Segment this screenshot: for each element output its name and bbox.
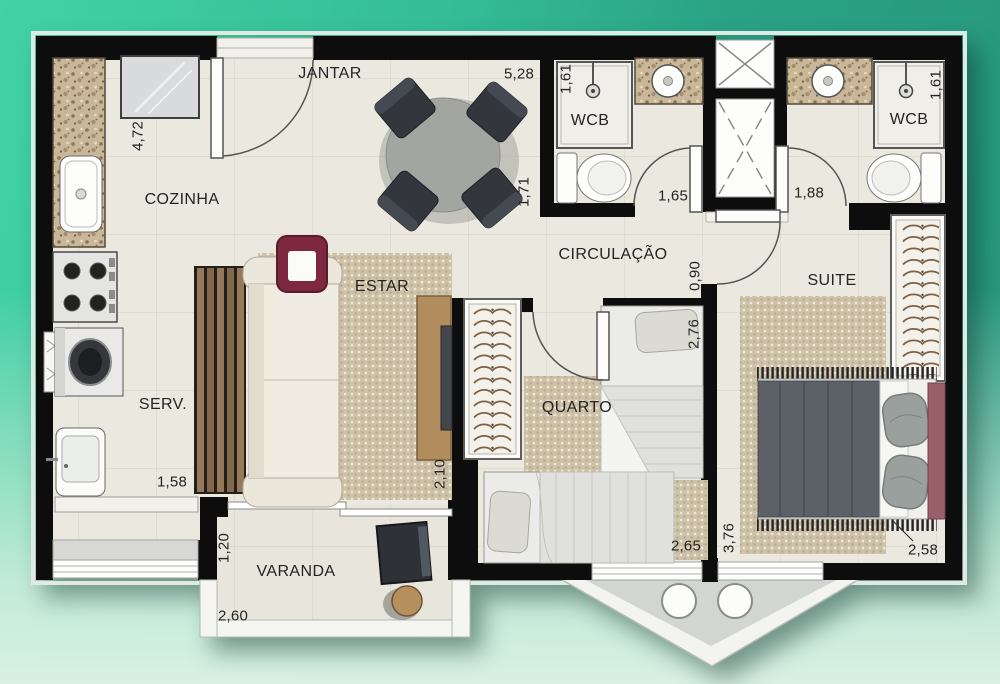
dim-serv-width: 1,58 bbox=[157, 475, 187, 490]
dining bbox=[372, 76, 529, 234]
living bbox=[194, 236, 452, 507]
room-label-circulacao: CIRCULAÇÃO bbox=[559, 247, 668, 263]
dim-quarto-bed-length: 2,76 bbox=[687, 319, 702, 349]
dim-suite-depth: 3,76 bbox=[722, 523, 737, 553]
dim-wcb-right-entry: 1,88 bbox=[794, 186, 824, 201]
bedroom-window bbox=[592, 562, 702, 580]
room-label-jantar: JANTAR bbox=[298, 66, 361, 82]
room-label-cozinha: COZINHA bbox=[145, 192, 220, 208]
balcony-railing bbox=[452, 580, 470, 637]
room-label-quarto: QUARTO bbox=[542, 400, 612, 416]
dim-estar-tv-wall: 2,10 bbox=[433, 459, 448, 489]
room-label-wcb-right: WCB bbox=[890, 112, 929, 128]
stove bbox=[53, 252, 117, 322]
tv bbox=[441, 326, 452, 430]
suite-window bbox=[718, 562, 823, 580]
suite-door bbox=[716, 210, 780, 222]
bedroom-door bbox=[597, 312, 609, 380]
pillow bbox=[881, 453, 932, 511]
floor-plan bbox=[0, 0, 1000, 684]
floorplan-image: JANTAR 5,28 1,61 WCB WCB 1,61 COZINHA 4,… bbox=[0, 0, 1000, 684]
balcony-railing bbox=[200, 580, 217, 637]
pillow bbox=[487, 491, 531, 554]
dim-varanda-width: 2,60 bbox=[218, 609, 248, 624]
sliding-door bbox=[340, 509, 452, 516]
terrace-table bbox=[718, 584, 752, 618]
dim-varanda-depth: 1,20 bbox=[217, 533, 232, 563]
bathroom-left-door bbox=[690, 146, 702, 212]
balcony-chair bbox=[377, 522, 432, 584]
dim-wcb-right-depth: 1,61 bbox=[929, 70, 944, 100]
service-window bbox=[53, 560, 198, 578]
room-label-varanda: VARANDA bbox=[257, 564, 336, 580]
shaft-lower bbox=[716, 99, 774, 197]
room-label-serv: SERV. bbox=[139, 397, 187, 413]
dim-wcb-left-entry: 1,65 bbox=[658, 189, 688, 204]
dim-jantar-depth: 1,71 bbox=[517, 177, 532, 207]
bathroom-right-door bbox=[776, 146, 788, 212]
toilet bbox=[921, 153, 941, 203]
pillow bbox=[881, 391, 932, 449]
dim-circulacao-width: 0,90 bbox=[688, 261, 703, 291]
room-label-suite: SUITE bbox=[807, 273, 856, 289]
entrance-door bbox=[211, 58, 223, 158]
terrace-table bbox=[662, 584, 696, 618]
headboard bbox=[928, 383, 945, 519]
dim-cozinha-depth: 4,72 bbox=[131, 121, 146, 151]
dim-wcb-left-depth: 1,61 bbox=[559, 64, 574, 94]
dim-jantar-width: 5,28 bbox=[504, 67, 534, 82]
balcony-stool bbox=[392, 586, 422, 616]
dim-suite-bed-width: 2,58 bbox=[908, 543, 938, 558]
toilet bbox=[557, 153, 577, 203]
terrace bbox=[552, 574, 868, 666]
service-low-wall bbox=[55, 497, 198, 512]
room-label-wcb-left: WCB bbox=[571, 113, 610, 129]
room-label-estar: ESTAR bbox=[355, 279, 409, 295]
service-glass bbox=[53, 540, 198, 560]
dim-quarto-width: 2,65 bbox=[671, 539, 701, 554]
